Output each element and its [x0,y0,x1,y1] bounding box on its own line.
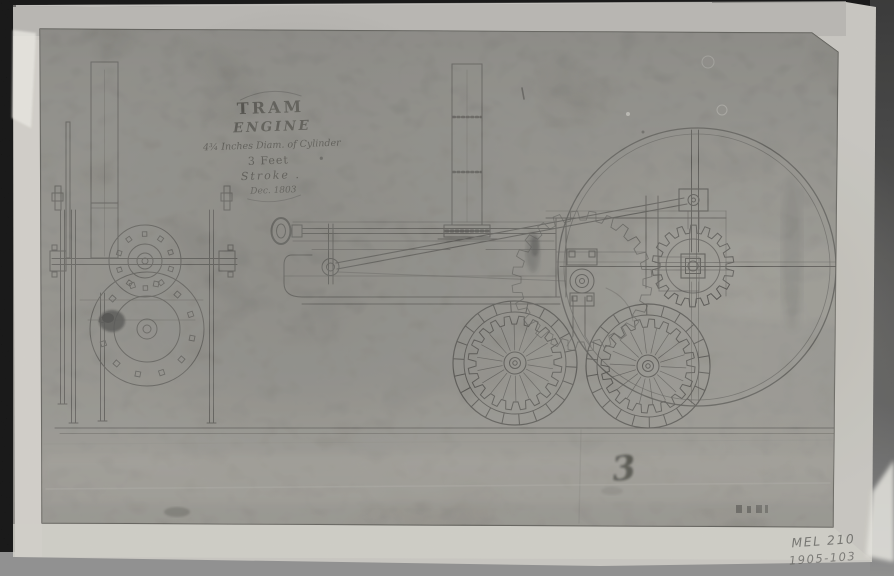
scanned-drawing-svg: TRAM ENGINE 4¾ Inches Diam. of Cylinder … [0,0,894,576]
film-grain-overlay [0,0,894,576]
photograph-of-tram-engine-drawing: TRAM ENGINE 4¾ Inches Diam. of Cylinder … [0,0,894,576]
